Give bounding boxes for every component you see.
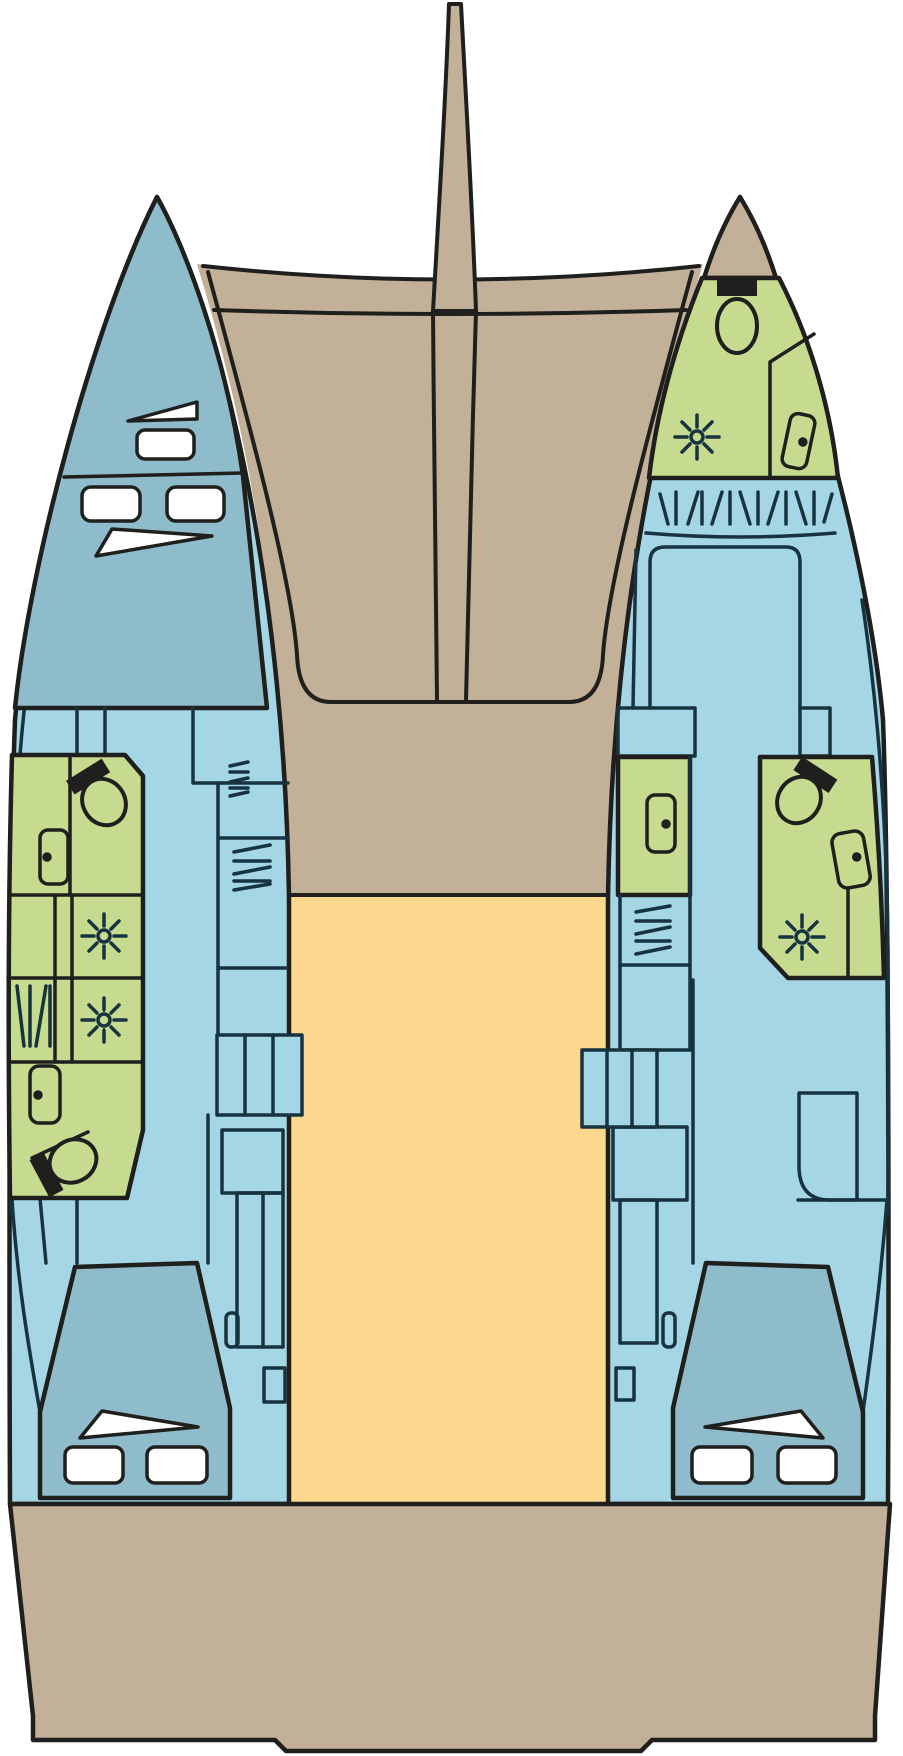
- berth-pillow-icon: [65, 1447, 123, 1483]
- port-cabin-hatch-right: [167, 487, 224, 521]
- catamaran-deck-plan: [0, 0, 903, 1756]
- starboard-inboard-head: [618, 757, 690, 895]
- port-companionway-steps-icon: [217, 1035, 302, 1115]
- saloon-cockpit: [288, 895, 610, 1504]
- floor-plan-canvas: [0, 0, 903, 1756]
- stern-platform: [10, 1504, 890, 1751]
- berth-pillow-icon: [147, 1447, 207, 1483]
- stern-platform-group: [10, 1504, 890, 1751]
- toilet-cistern: [717, 280, 757, 296]
- berth-pillow-icon: [692, 1447, 752, 1483]
- starboard-companionway-steps-icon: [582, 1050, 657, 1127]
- port-cabin-hatch-left: [82, 487, 140, 521]
- berth-pillow-icon: [778, 1447, 836, 1483]
- toilet-icon: [717, 299, 757, 353]
- bow-hatch-icon: [137, 430, 194, 459]
